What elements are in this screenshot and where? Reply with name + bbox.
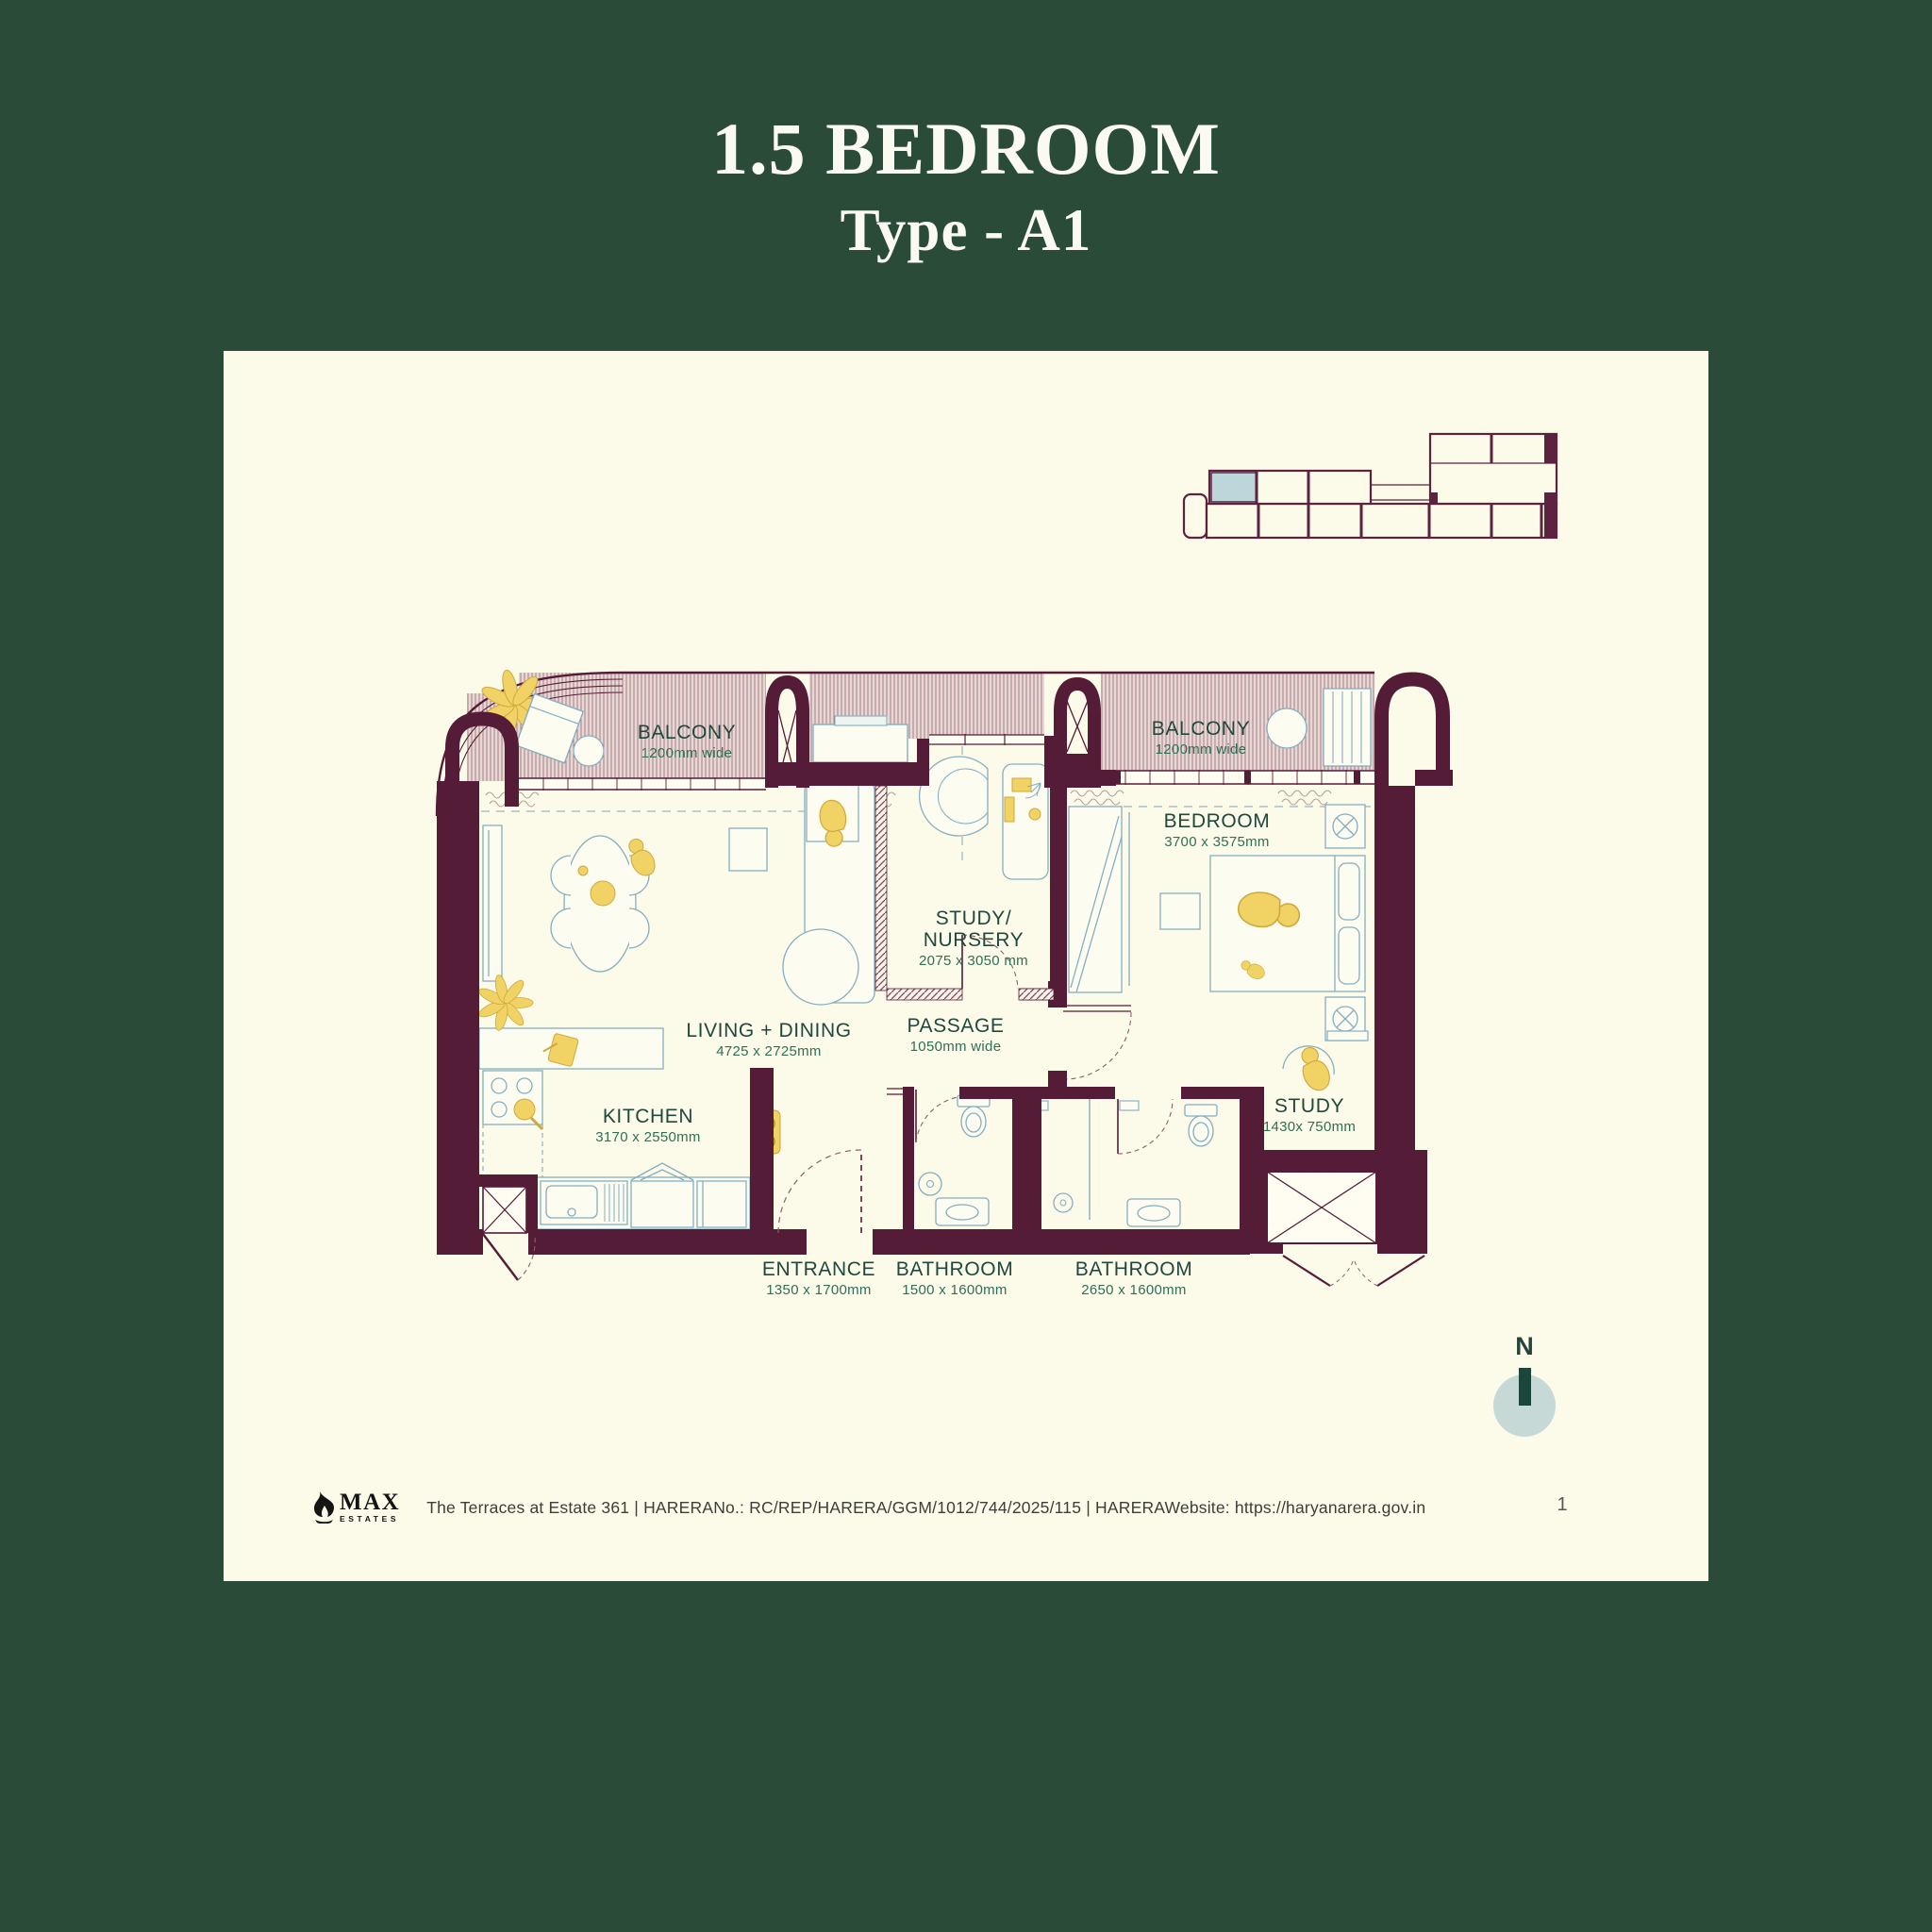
study-nursery-furniture bbox=[920, 757, 1048, 879]
person-study bbox=[1295, 1044, 1334, 1094]
room-label-bathroom-1: BATHROOM 1500 x 1600mm bbox=[896, 1258, 1014, 1300]
keyplan-right-block bbox=[1430, 434, 1557, 504]
plant-living bbox=[477, 974, 533, 1032]
room-label-kitchen: KITCHEN 3170 x 2550mm bbox=[595, 1106, 700, 1147]
room-label-study: STUDY 1430x 750mm bbox=[1263, 1095, 1356, 1137]
room-label-balcony-left: BALCONY 1200mm wide bbox=[638, 722, 737, 763]
room-label-study-nursery: STUDY/ NURSERY 2075 x 3050 mm bbox=[919, 908, 1028, 971]
nightstand-lamp-1 bbox=[1325, 805, 1365, 848]
compass-north-label: N bbox=[1506, 1332, 1543, 1361]
page-title: 1.5 BEDROOM Type - A1 bbox=[0, 106, 1932, 268]
title-unit-type: Type - A1 bbox=[0, 192, 1932, 268]
max-estates-logo: MAX ESTATES bbox=[311, 1491, 400, 1524]
key-plan bbox=[1182, 432, 1569, 543]
bathroom-fixtures bbox=[919, 1095, 1217, 1226]
room-label-balcony-right: BALCONY 1200mm wide bbox=[1152, 718, 1251, 759]
brand-max: MAX bbox=[340, 1491, 400, 1514]
keyplan-lobby bbox=[1184, 494, 1207, 538]
flame-icon bbox=[311, 1491, 336, 1524]
footer: MAX ESTATES The Terraces at Estate 361 |… bbox=[311, 1477, 1425, 1538]
room-label-bedroom: BEDROOM 3700 x 3575mm bbox=[1164, 810, 1271, 852]
room-label-entrance: ENTRANCE 1350 x 1700mm bbox=[762, 1258, 875, 1300]
room-label-bathroom-2: BATHROOM 2650 x 1600mm bbox=[1075, 1258, 1193, 1300]
compass-needle bbox=[1519, 1368, 1531, 1406]
title-bedroom-type: 1.5 BEDROOM bbox=[0, 106, 1932, 192]
room-label-passage: PASSAGE 1050mm wide bbox=[907, 1015, 1004, 1057]
brand-estates: ESTATES bbox=[340, 1514, 400, 1524]
room-label-living-dining: LIVING + DINING 4725 x 2725mm bbox=[686, 1020, 851, 1061]
curtain-symbols bbox=[486, 791, 1331, 807]
brochure-page: 1.5 BEDROOM Type - A1 bbox=[0, 0, 1932, 1932]
keyplan-highlighted-unit bbox=[1211, 473, 1257, 502]
floor-plan bbox=[429, 656, 1472, 1316]
rera-disclaimer: The Terraces at Estate 361 | HARERANo.: … bbox=[426, 1498, 1425, 1518]
page-number: 1 bbox=[1543, 1494, 1581, 1516]
